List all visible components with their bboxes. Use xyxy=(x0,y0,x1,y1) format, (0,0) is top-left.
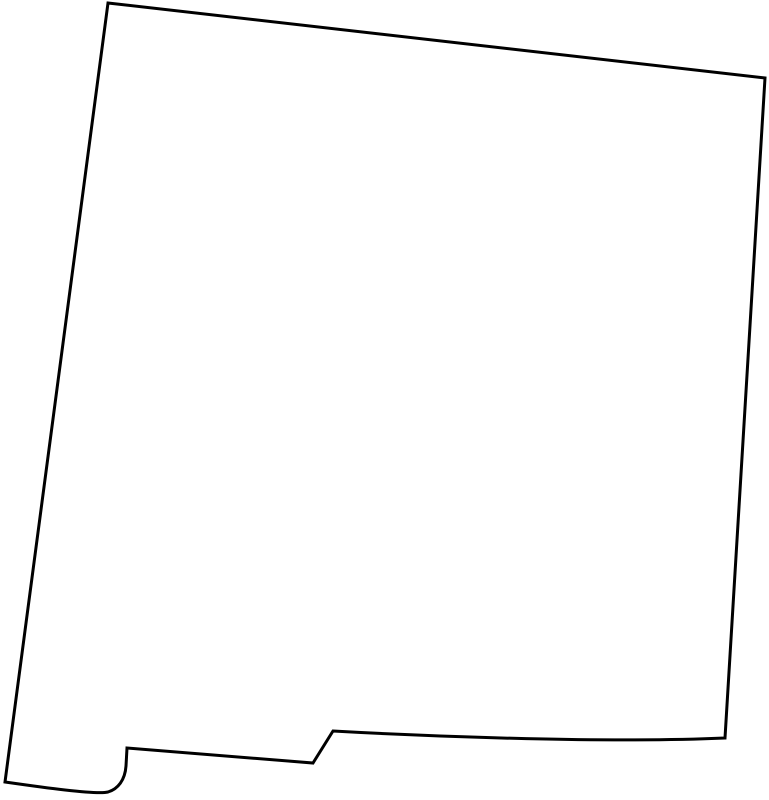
new-mexico-outline-map xyxy=(0,0,769,800)
map-canvas xyxy=(0,0,769,800)
new-mexico-state-border-path xyxy=(5,3,765,793)
